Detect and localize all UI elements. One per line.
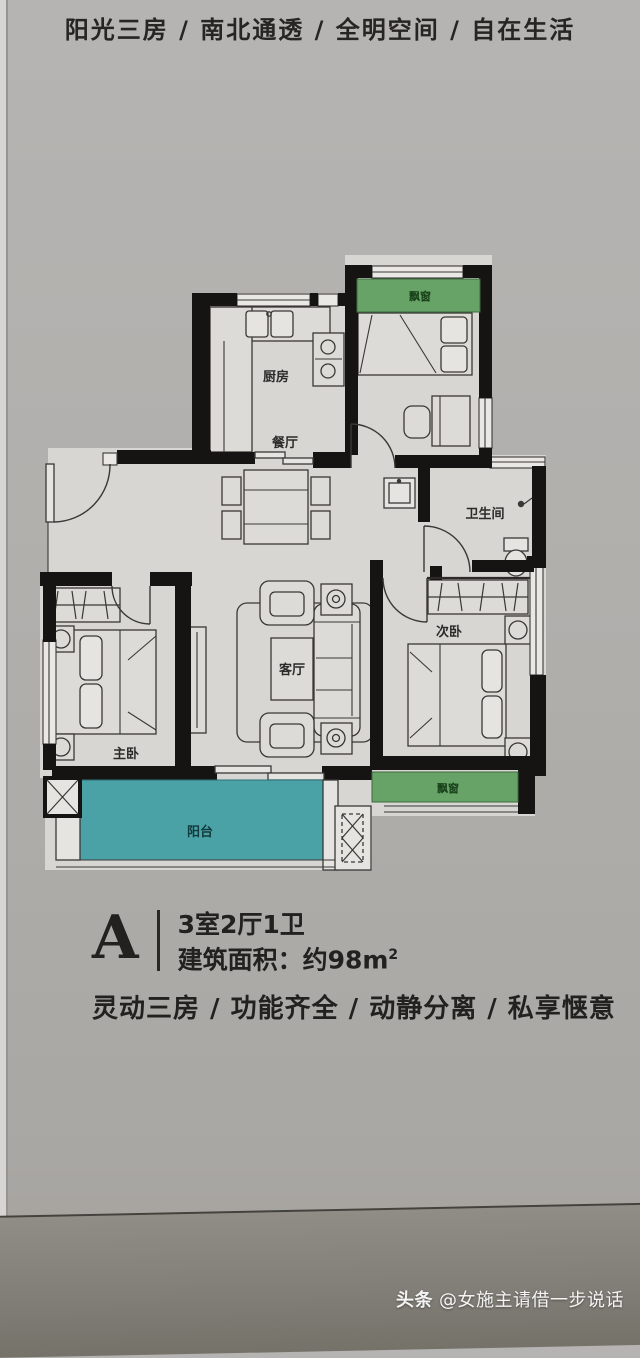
kitchen-sink-right <box>271 311 293 337</box>
label-living: 客厅 <box>279 662 305 678</box>
balcony-zone <box>45 778 371 870</box>
armchair <box>260 713 314 757</box>
entry-door-leaf <box>46 464 54 522</box>
unit-layout: 3室2厅1卫 <box>178 910 399 940</box>
kitchen-sliding-door <box>283 458 313 464</box>
pillow <box>80 684 102 728</box>
label-dining: 餐厅 <box>271 435 298 451</box>
dining-chair <box>222 477 241 505</box>
dining-chair <box>311 511 330 539</box>
floor-plan: 厨房 餐厅 客厅 主卧 次卧 卫生间 阳台 飘窗 飘窗 <box>40 250 610 895</box>
shower-icon <box>518 501 524 507</box>
faucet-icon <box>397 479 401 483</box>
label-balcony: 阳台 <box>187 824 213 840</box>
tv-cabinet <box>190 627 206 733</box>
label-master-bedroom: 主卧 <box>113 746 139 762</box>
watermark: 头条@女施主请借一步说话 <box>396 1286 624 1312</box>
flue <box>335 806 371 870</box>
unit-info: A 3室2厅1卫 建筑面积：约98m2 <box>92 902 398 975</box>
desk <box>432 396 470 446</box>
side-table <box>321 584 352 615</box>
label-kitchen: 厨房 <box>263 369 289 385</box>
label-second-bedroom: 次卧 <box>436 624 462 640</box>
dining-table <box>244 470 308 544</box>
pillow <box>482 696 502 738</box>
kitchen-sink-left <box>246 311 268 337</box>
unit-letter: A <box>92 902 157 975</box>
kitchen-sliding-door <box>255 452 285 458</box>
watermark-brand: 头条 <box>396 1290 433 1311</box>
pillow <box>482 650 502 692</box>
pillow <box>80 636 102 680</box>
watermark-handle: @女施主请借一步说话 <box>439 1290 624 1311</box>
label-bay-window-top: 飘窗 <box>409 289 431 303</box>
page-fold-shadow <box>0 1202 640 1358</box>
armchair <box>260 581 314 625</box>
dining-chair <box>311 477 330 505</box>
sofa <box>314 604 360 736</box>
desk-chair <box>404 406 430 438</box>
balcony-sliding-door <box>268 773 324 780</box>
headline-top: 阳光三房 / 南北通透 / 全明空间 / 自在生活 <box>0 10 640 45</box>
headline-bottom: 灵动三房 / 功能齐全 / 动静分离 / 私享惬意 <box>92 988 616 1025</box>
page-edge <box>0 0 8 1323</box>
label-bathroom: 卫生间 <box>465 506 504 522</box>
unit-area: 建筑面积：约98m2 <box>178 940 399 975</box>
toilet-tank <box>504 538 528 551</box>
label-bay-window-bottom: 飘窗 <box>437 781 459 795</box>
dining-chair <box>222 511 241 539</box>
balcony-sliding-door <box>215 766 271 773</box>
side-table <box>321 723 352 754</box>
